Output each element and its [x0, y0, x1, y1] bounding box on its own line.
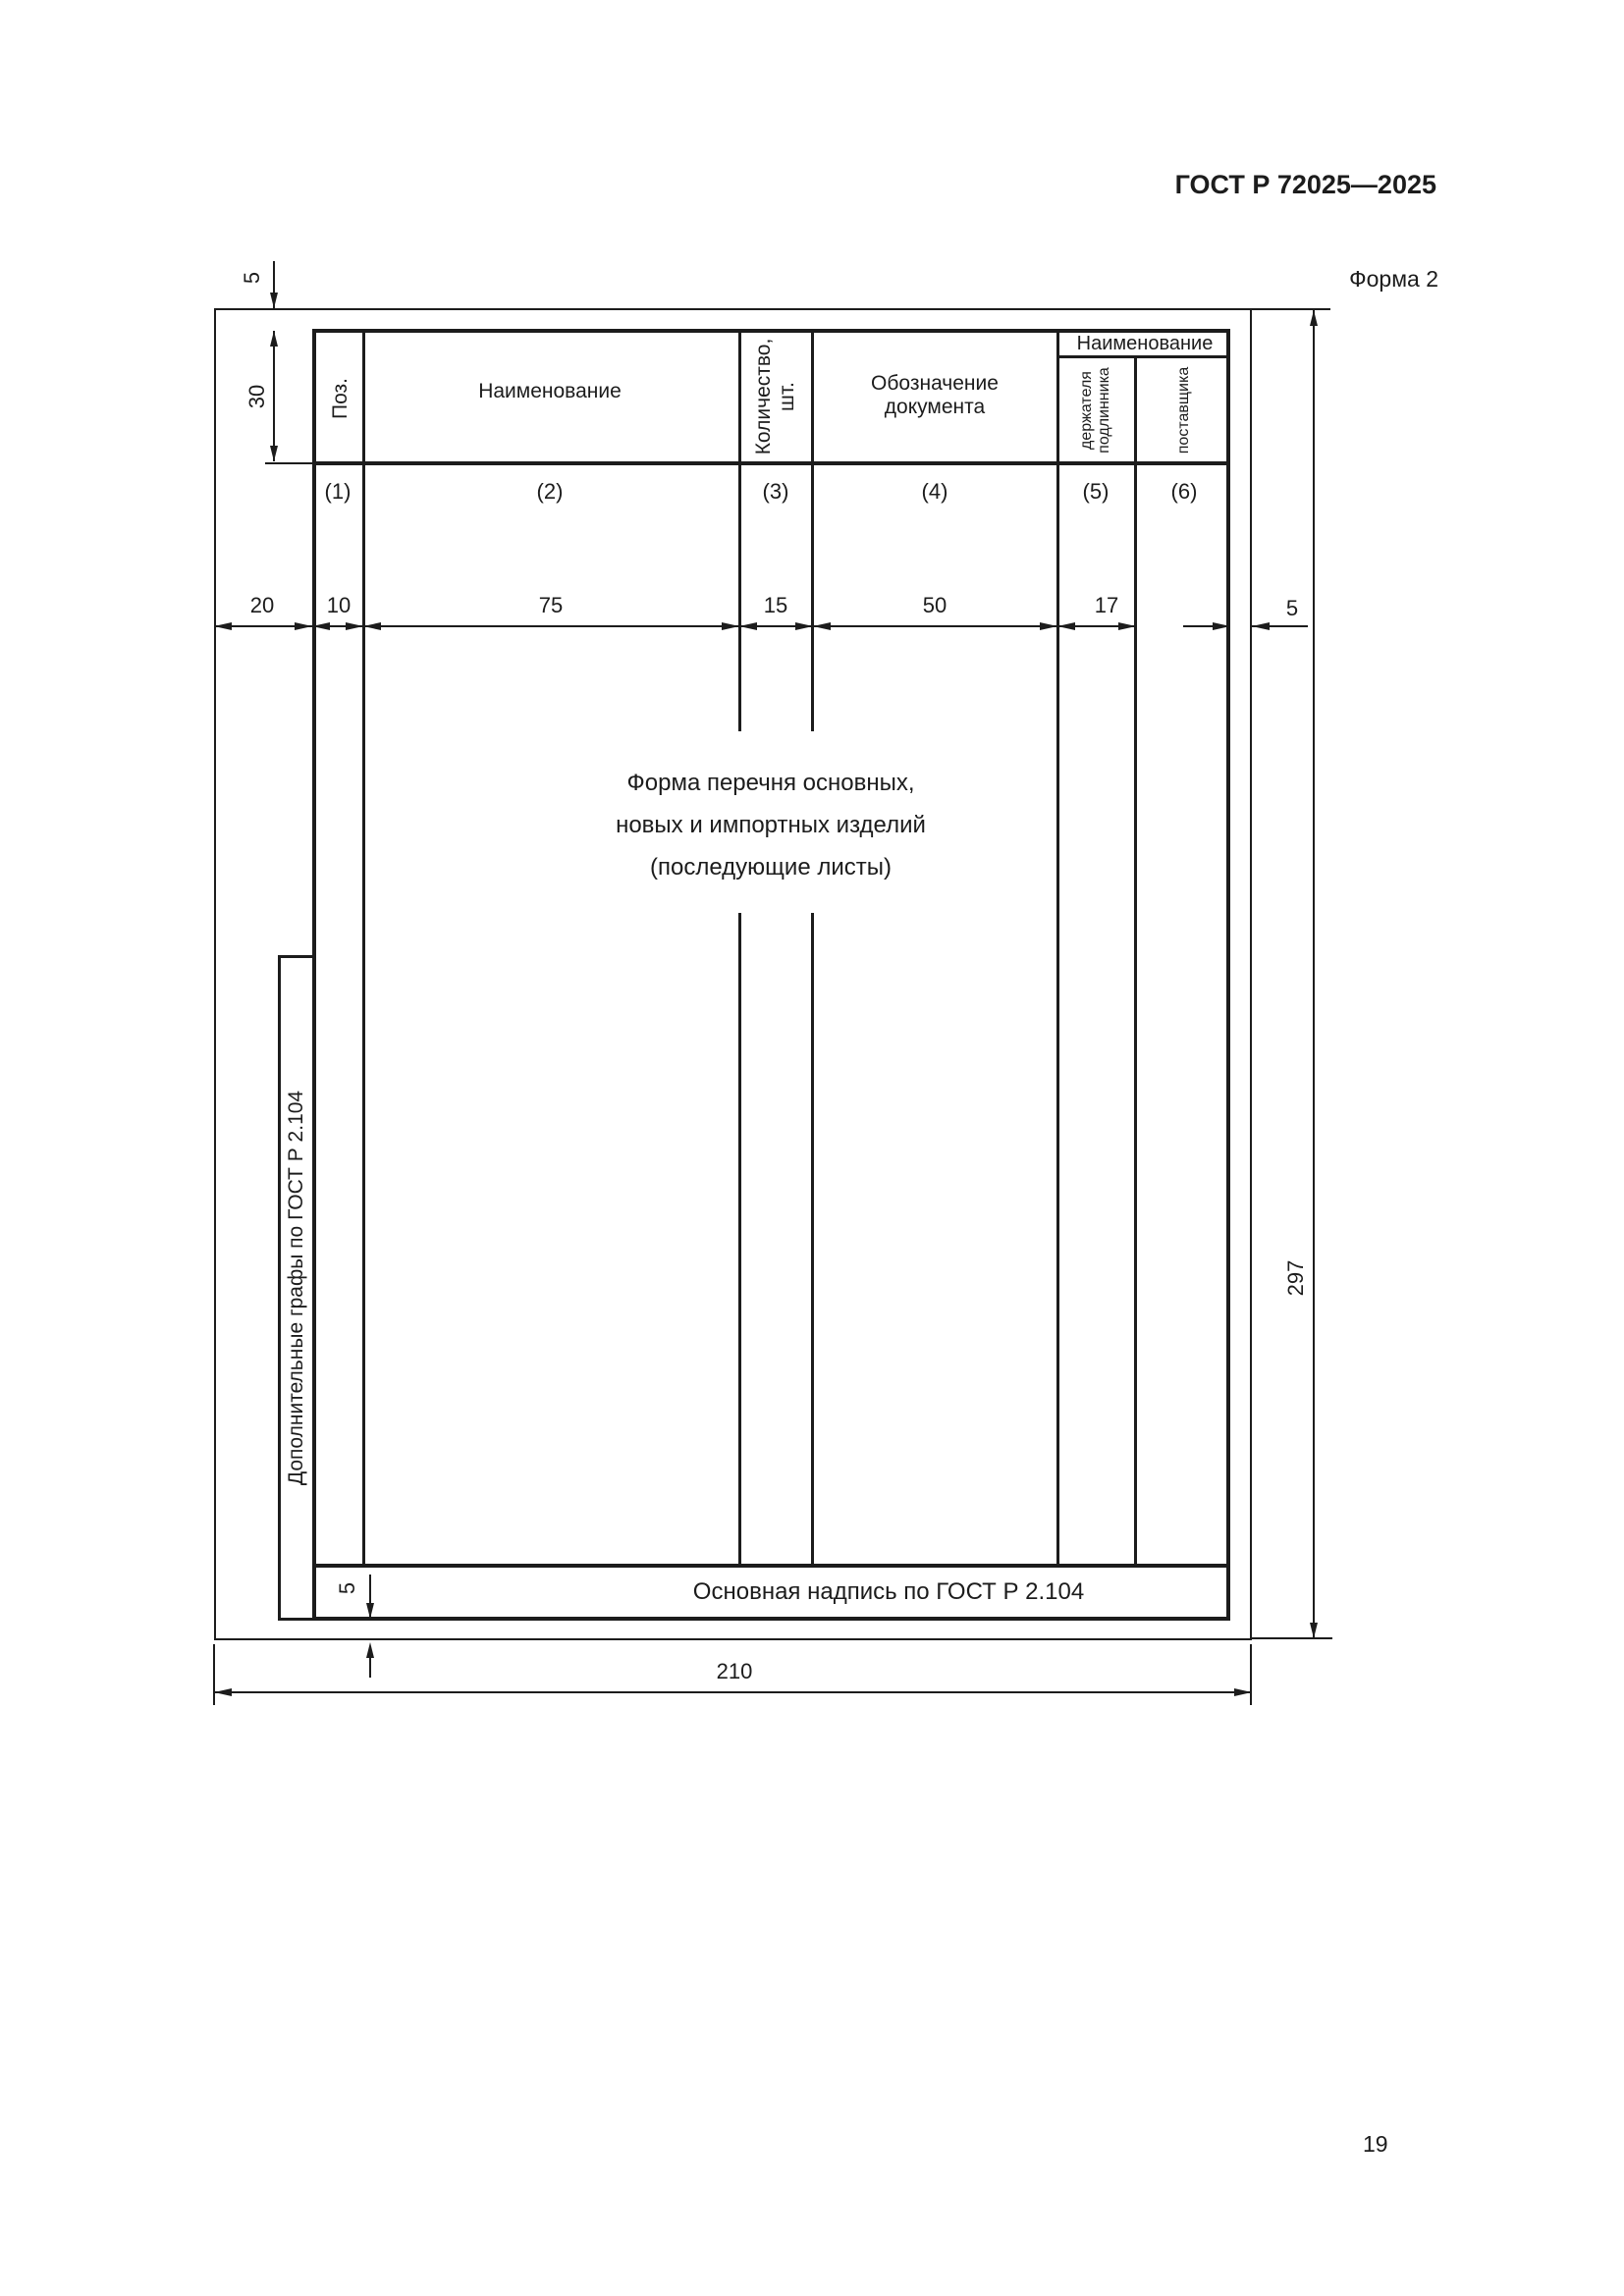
bottom-margin-dim-line-lower: [369, 1658, 371, 1678]
arrow-east-icon: [1118, 622, 1136, 630]
col-line-qty-upper: [811, 329, 814, 731]
arrow-north-icon: [1310, 310, 1318, 326]
page-number: 19: [1363, 2132, 1388, 2156]
center-note: Форма перечня основных, новых и импортны…: [616, 762, 926, 888]
col-header-qty: Количество, шт.: [752, 339, 799, 455]
header-height-dim-line: [273, 331, 275, 461]
dim-titleblock-margin: 5: [336, 1582, 359, 1594]
arrow-east-icon: [295, 622, 312, 630]
col-header-holder: держателя подлинника: [1078, 367, 1113, 454]
arrow-east-icon: [1234, 1688, 1252, 1696]
dim-header-height: 30: [245, 385, 269, 408]
col-line-holder: [1134, 358, 1137, 1567]
header-bottom-line: [312, 461, 1230, 465]
arrow-south-icon: [270, 293, 278, 308]
dim-right-margin: 5: [1286, 597, 1298, 620]
table-outline: [312, 329, 1230, 1621]
col-line-doc: [1056, 329, 1059, 1567]
arrow-east-icon: [346, 622, 363, 630]
center-note-line1: Форма перечня основных,: [616, 762, 926, 804]
document-page: ГОСТ Р 72025—2025 Форма 2 Дополнительные…: [0, 0, 1624, 2296]
col-number-3: (3): [763, 480, 789, 504]
col-header-poz: Поз.: [329, 378, 352, 419]
arrow-west-icon: [1252, 622, 1270, 630]
arrow-south-icon: [270, 446, 278, 461]
col-header-name: Наименование: [478, 380, 622, 403]
center-note-line2: новых и импортных изделий: [616, 804, 926, 846]
titleblock-top-line: [312, 1564, 1230, 1568]
arrow-west-icon: [1057, 622, 1075, 630]
arrow-east-icon: [795, 622, 813, 630]
dim-extra-width: 20: [250, 594, 274, 617]
arrow-west-icon: [214, 1688, 232, 1696]
col-line-poz: [362, 329, 365, 1567]
sheet-width-dim-line: [214, 1691, 1252, 1693]
dim-qty-width: 15: [764, 594, 787, 617]
dim-poz-width: 10: [327, 594, 351, 617]
col-header-doc-line1: Обозначение: [871, 372, 999, 396]
titleblock-label: Основная надпись по ГОСТ Р 2.104: [693, 1580, 1084, 1604]
col-line-qty-lower: [811, 913, 814, 1567]
arrow-south-icon: [366, 1603, 374, 1619]
height-ext-bottom: [1252, 1637, 1332, 1639]
arrow-west-icon: [214, 622, 232, 630]
col-line-name-upper: [738, 329, 741, 731]
dim-sheet-height: 297: [1284, 1260, 1308, 1297]
arrow-north-icon: [270, 331, 278, 347]
arrow-east-icon: [722, 622, 739, 630]
col-header-qty-line2: шт.: [776, 339, 799, 455]
height-ext-top: [1252, 308, 1330, 310]
col-number-4: (4): [922, 480, 948, 504]
col-number-6: (6): [1171, 480, 1198, 504]
arrow-west-icon: [363, 622, 381, 630]
arrow-west-icon: [739, 622, 757, 630]
col-header-supplier: поставщика: [1172, 367, 1196, 454]
dim-doc-width: 50: [923, 594, 947, 617]
height-dim-line: [1313, 310, 1315, 1638]
arrow-north-icon: [366, 1642, 374, 1658]
col-number-2: (2): [537, 480, 564, 504]
header-extension-tick: [265, 462, 312, 464]
col-number-5: (5): [1083, 480, 1110, 504]
arrow-east-icon: [1213, 622, 1230, 630]
col-number-1: (1): [325, 480, 352, 504]
group-header-divider: [1057, 355, 1230, 358]
col-header-holder-line1: держателя: [1078, 367, 1096, 454]
dim-top-margin: 5: [241, 272, 264, 284]
dim-holder-width: 17: [1095, 594, 1118, 617]
arrow-west-icon: [813, 622, 831, 630]
extra-columns-label: Дополнительные графы по ГОСТ Р 2.104: [285, 1091, 308, 1485]
dim-name-width: 75: [539, 594, 563, 617]
arrow-south-icon: [1310, 1623, 1318, 1638]
arrow-east-icon: [1040, 622, 1057, 630]
dim-sheet-width: 210: [717, 1660, 753, 1683]
col-header-doc: Обозначение документа: [871, 372, 999, 419]
group-header-name: Наименование: [1077, 332, 1214, 355]
center-note-line3: (последующие листы): [616, 846, 926, 888]
col-header-doc-line2: документа: [871, 396, 999, 419]
form-number-label: Форма 2: [1349, 267, 1438, 291]
col-line-name-lower: [738, 913, 741, 1567]
arrow-west-icon: [312, 622, 330, 630]
col-header-qty-line1: Количество,: [752, 339, 776, 455]
standard-designation: ГОСТ Р 72025—2025: [1175, 173, 1436, 196]
col-header-holder-line2: подлинника: [1096, 367, 1113, 454]
